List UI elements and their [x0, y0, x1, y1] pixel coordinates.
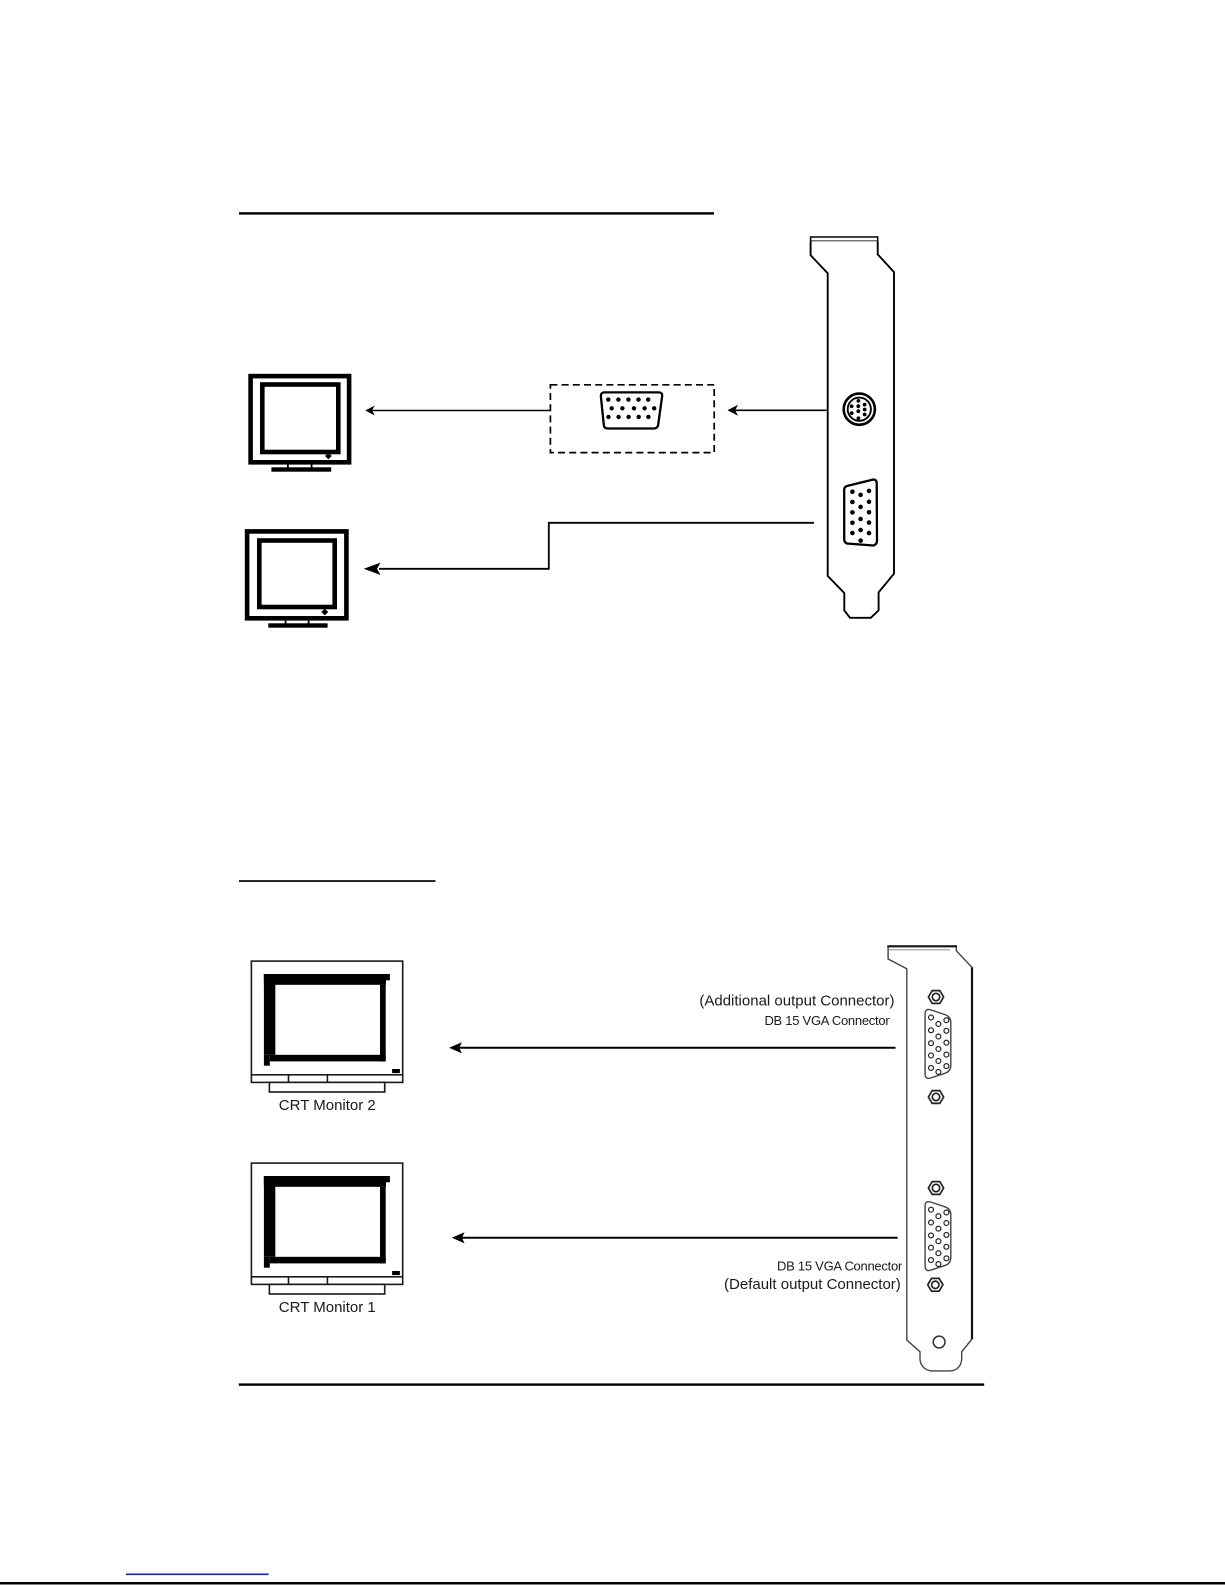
svg-text:CRT Monitor 2: CRT Monitor 2: [279, 1097, 376, 1114]
svg-text:(Default output Connector): (Default output Connector): [724, 1276, 901, 1293]
svg-text:DB 15 VGA Connector: DB 15 VGA Connector: [777, 1259, 903, 1274]
svg-text:DB 15 VGA Connector: DB 15 VGA Connector: [764, 1013, 890, 1028]
svg-text:CRT Monitor 1: CRT Monitor 1: [279, 1299, 376, 1316]
svg-text:(Additional output Connector): (Additional output Connector): [699, 992, 894, 1009]
